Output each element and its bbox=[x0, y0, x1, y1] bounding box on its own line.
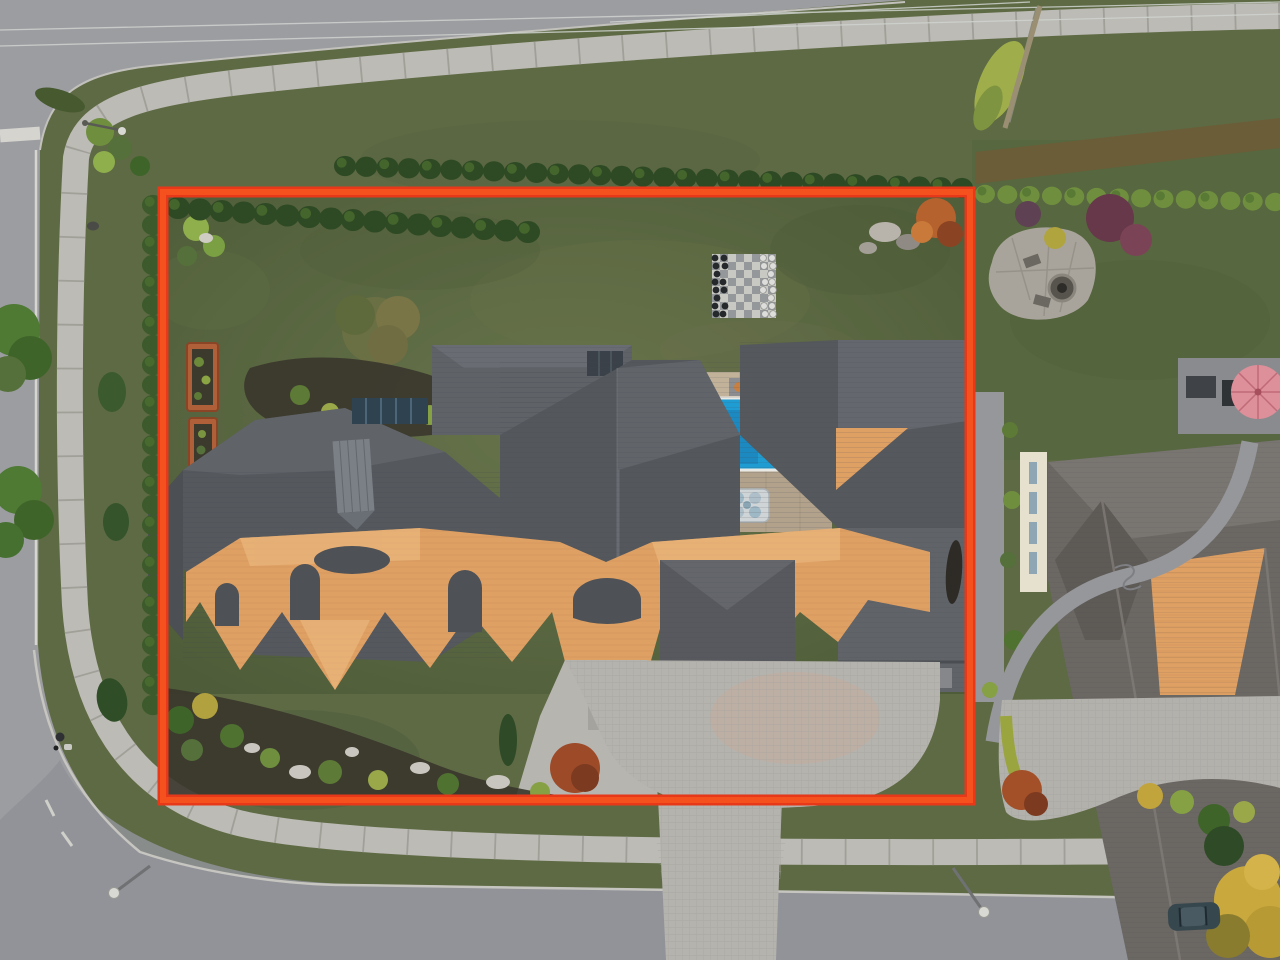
chess-piece bbox=[768, 295, 775, 302]
hedge-shrub bbox=[611, 166, 633, 186]
hedge-highlight bbox=[475, 220, 486, 231]
hedge-highlight bbox=[145, 277, 155, 287]
chess-piece bbox=[761, 303, 768, 310]
chess-piece bbox=[722, 263, 729, 270]
chess-piece bbox=[720, 279, 727, 286]
hedge-shrub bbox=[363, 210, 387, 232]
hedge-highlight bbox=[890, 177, 900, 187]
chess-square bbox=[760, 270, 768, 278]
hedge-highlight bbox=[388, 214, 399, 225]
chess-square bbox=[744, 302, 752, 310]
hedge-shrub bbox=[1176, 190, 1196, 208]
chess-piece bbox=[721, 255, 728, 262]
chess-square bbox=[728, 302, 736, 310]
hedge-highlight bbox=[145, 637, 155, 647]
chess-square bbox=[728, 310, 736, 318]
patio-furniture bbox=[1186, 376, 1216, 398]
chess-square bbox=[736, 310, 744, 318]
parked-car bbox=[1167, 902, 1220, 932]
hedge-highlight bbox=[145, 397, 155, 407]
hedge-highlight bbox=[145, 677, 155, 687]
hedge-highlight bbox=[145, 597, 155, 607]
hedge-highlight bbox=[1022, 188, 1031, 197]
hedge-shrub bbox=[275, 204, 299, 226]
chess-square bbox=[744, 278, 752, 286]
neighbor-side-wall bbox=[1020, 452, 1047, 592]
chess-square bbox=[752, 294, 760, 302]
chess-square bbox=[744, 270, 752, 278]
giant-chess-board bbox=[712, 254, 777, 318]
hedge-highlight bbox=[720, 171, 730, 181]
chess-square bbox=[736, 270, 744, 278]
chess-square bbox=[736, 286, 744, 294]
chess-square bbox=[736, 294, 744, 302]
hedge-highlight bbox=[805, 174, 815, 184]
hedge-highlight bbox=[422, 161, 432, 171]
hedge-shrub bbox=[696, 169, 718, 189]
chess-square bbox=[728, 294, 736, 302]
chess-square bbox=[752, 270, 760, 278]
chess-piece bbox=[713, 311, 720, 318]
chess-square bbox=[728, 270, 736, 278]
hedge-highlight bbox=[432, 217, 443, 228]
chess-piece bbox=[769, 303, 776, 310]
chess-piece bbox=[713, 263, 720, 270]
hedge-highlight bbox=[1067, 189, 1076, 198]
hedge-shrub bbox=[653, 167, 675, 187]
chess-piece bbox=[768, 271, 775, 278]
chess-square bbox=[728, 254, 736, 262]
chess-square bbox=[752, 254, 760, 262]
chess-piece bbox=[770, 263, 777, 270]
chess-piece bbox=[770, 311, 777, 318]
driveway-exit-pattern bbox=[658, 798, 782, 960]
hedge-shrub bbox=[997, 185, 1017, 203]
hedge-shrub bbox=[440, 160, 462, 180]
chess-square bbox=[736, 254, 744, 262]
chess-square bbox=[752, 302, 760, 310]
maroon-bush-2 bbox=[1120, 224, 1152, 256]
fire-pit-patio bbox=[989, 227, 1096, 319]
chess-piece bbox=[712, 279, 719, 286]
hedge-highlight bbox=[677, 170, 687, 180]
hedge-shrub bbox=[494, 219, 518, 241]
hedge-highlight bbox=[145, 237, 155, 247]
chess-piece bbox=[714, 271, 721, 278]
chess-square bbox=[744, 254, 752, 262]
chess-square bbox=[752, 286, 760, 294]
chess-square bbox=[744, 286, 752, 294]
chess-square bbox=[752, 262, 760, 270]
chess-piece bbox=[769, 279, 776, 286]
hedge-shrub bbox=[450, 216, 474, 238]
hedge-highlight bbox=[145, 517, 155, 527]
boulevard-conifer-1 bbox=[98, 372, 126, 412]
hedge-shrub bbox=[1042, 187, 1062, 205]
aerial-photo-stage bbox=[0, 0, 1280, 960]
hedge-shrub bbox=[188, 198, 212, 220]
purple-bush bbox=[1015, 201, 1041, 227]
hedge-highlight bbox=[169, 199, 180, 210]
chess-square bbox=[752, 278, 760, 286]
chess-piece bbox=[714, 295, 721, 302]
hedge-highlight bbox=[635, 168, 645, 178]
chess-square bbox=[736, 278, 744, 286]
hedge-shrub bbox=[355, 157, 377, 177]
hedge-shrub bbox=[232, 201, 256, 223]
hedge-highlight bbox=[1156, 191, 1165, 200]
chess-piece bbox=[762, 279, 769, 286]
right-wing-texture bbox=[740, 340, 975, 528]
hedge-highlight bbox=[145, 357, 155, 367]
boulevard-conifer-2 bbox=[103, 503, 129, 541]
hedge-highlight bbox=[344, 211, 355, 222]
chess-square bbox=[744, 310, 752, 318]
yellow-bush bbox=[1044, 227, 1066, 249]
hedge-shrub bbox=[1131, 189, 1151, 207]
hedge-highlight bbox=[847, 176, 857, 186]
chess-square bbox=[744, 294, 752, 302]
hedge-highlight bbox=[550, 165, 560, 175]
chess-square bbox=[744, 262, 752, 270]
hedge-shrub bbox=[568, 164, 590, 184]
chess-square bbox=[760, 294, 768, 302]
hedge-highlight bbox=[464, 162, 474, 172]
chess-piece bbox=[712, 303, 719, 310]
chess-piece bbox=[720, 311, 727, 318]
chess-piece bbox=[722, 303, 729, 310]
chess-piece bbox=[761, 263, 768, 270]
chess-piece bbox=[712, 255, 719, 262]
hedge-shrub bbox=[525, 163, 547, 183]
hedge-highlight bbox=[145, 477, 155, 487]
chess-piece bbox=[760, 255, 767, 262]
hedge-highlight bbox=[519, 223, 530, 234]
hedge-shrub bbox=[407, 213, 431, 235]
hedge-highlight bbox=[978, 187, 987, 196]
chess-piece bbox=[713, 287, 720, 294]
chess-square bbox=[736, 262, 744, 270]
chess-square bbox=[720, 270, 728, 278]
chess-piece bbox=[721, 287, 728, 294]
hedge-highlight bbox=[592, 167, 602, 177]
hedge-highlight bbox=[145, 557, 155, 567]
chess-piece bbox=[762, 311, 769, 318]
hedge-highlight bbox=[300, 208, 311, 219]
hedge-highlight bbox=[145, 437, 155, 447]
chess-piece bbox=[760, 287, 767, 294]
chess-square bbox=[728, 262, 736, 270]
chess-square bbox=[752, 310, 760, 318]
hedge-highlight bbox=[145, 317, 155, 327]
chess-square bbox=[728, 278, 736, 286]
hedge-shrub bbox=[483, 161, 505, 181]
skylight-walkway bbox=[352, 398, 428, 424]
hedge-highlight bbox=[1201, 193, 1210, 202]
hedge-highlight bbox=[213, 202, 224, 213]
chess-square bbox=[728, 286, 736, 294]
hedge-shrub bbox=[1220, 192, 1240, 210]
chess-piece bbox=[770, 287, 777, 294]
chess-square bbox=[736, 302, 744, 310]
hedge-shrub bbox=[319, 207, 343, 229]
chess-piece bbox=[769, 255, 776, 262]
chess-square bbox=[720, 294, 728, 302]
hedge-highlight bbox=[379, 159, 389, 169]
hedge-highlight bbox=[257, 205, 268, 216]
hedge-highlight bbox=[507, 164, 517, 174]
hedge-highlight bbox=[1245, 194, 1254, 203]
garden-planter-1 bbox=[187, 343, 218, 411]
aerial-photo bbox=[0, 0, 1280, 960]
side-path bbox=[974, 392, 1004, 702]
hedge-shrub bbox=[398, 158, 420, 178]
hedge-highlight bbox=[762, 173, 772, 183]
storm-drain bbox=[87, 222, 99, 231]
hedge-highlight bbox=[145, 197, 155, 207]
